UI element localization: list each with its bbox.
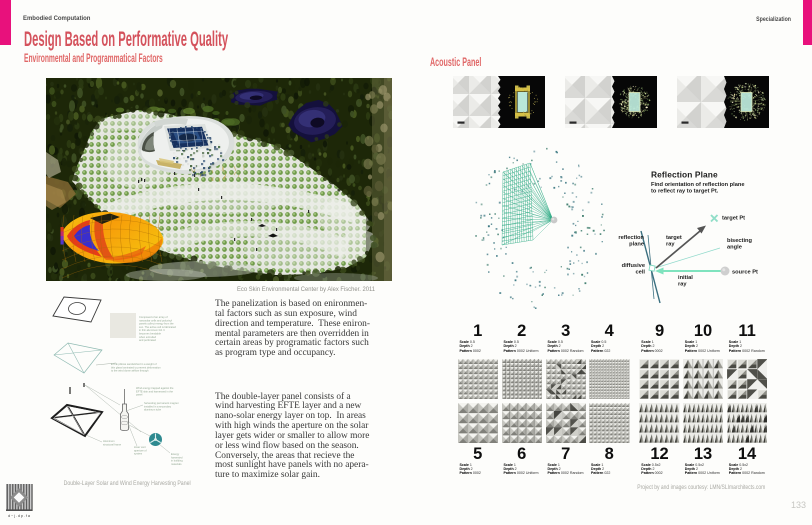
svg-text:panel: panel — [136, 393, 143, 397]
svg-text:plane: plane — [629, 242, 644, 248]
svg-text:cell: cell — [636, 270, 646, 276]
svg-text:diffusive: diffusive — [622, 263, 645, 269]
svg-text:aluminum tube: aluminum tube — [144, 408, 162, 412]
svg-text:structural frame: structural frame — [103, 442, 122, 446]
svg-text:materials: materials — [171, 462, 182, 466]
svg-text:ray: ray — [666, 242, 675, 248]
svg-text:angle: angle — [727, 245, 742, 251]
svg-text:source Pt: source Pt — [732, 270, 758, 276]
svg-text:to the wind dome airflow throu: to the wind dome airflow through — [111, 369, 149, 373]
svg-text:target Pt: target Pt — [722, 216, 745, 222]
svg-text:d~j.dp.fa: d~j.dp.fa — [8, 514, 31, 518]
svg-text:reflection: reflection — [618, 235, 644, 241]
svg-text:Reflection Plane: Reflection Plane — [651, 170, 718, 180]
svg-text:to reflect ray to target Pt.: to reflect ray to target Pt. — [651, 189, 719, 195]
svg-text:bisecting: bisecting — [727, 238, 752, 244]
svg-text:initial: initial — [678, 275, 693, 281]
svg-text:target: target — [666, 235, 682, 241]
svg-text:system: system — [134, 452, 142, 456]
svg-text:and perforated: and perforated — [139, 338, 156, 342]
svg-text:Find orientation of reflection: Find orientation of reflection plane — [651, 182, 745, 188]
svg-text:ray: ray — [678, 282, 687, 288]
